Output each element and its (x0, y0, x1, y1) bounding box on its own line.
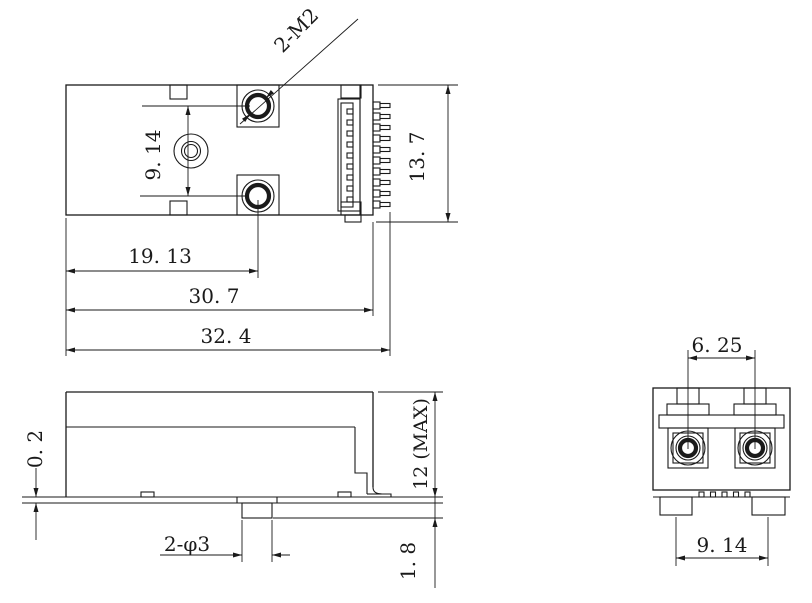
arrowhead (746, 356, 755, 361)
pin-tips (699, 492, 750, 497)
foot-left (660, 497, 692, 515)
dim-port-pitch: 6. 25 (688, 333, 755, 449)
arrowhead (759, 556, 768, 561)
connector-stub (345, 215, 361, 222)
arrowhead (433, 392, 438, 401)
port-flange-bar (659, 415, 784, 428)
arrowhead (66, 269, 75, 274)
dim-text-overall-length: 32. 4 (201, 324, 252, 348)
callout-peg-diameter: 2-φ3 (160, 520, 290, 562)
dim-text-width: 13. 7 (405, 132, 429, 183)
arrowhead (272, 553, 281, 558)
mounting-peg (237, 497, 277, 518)
arrowhead (34, 488, 39, 497)
arrowhead (433, 518, 438, 527)
tab-bottom-right (341, 202, 361, 215)
arrowhead (381, 348, 390, 353)
arrowhead (676, 556, 685, 561)
tab-bottom-left (170, 201, 187, 215)
dim-text-foot-pitch: 9. 14 (697, 533, 748, 557)
dim-body-length: 30. 7 (66, 284, 373, 313)
dim-text-hole-pitch: 9. 14 (141, 130, 165, 181)
arrowhead (446, 85, 451, 94)
dim-text-body-length: 30. 7 (189, 284, 240, 308)
arrowhead (249, 269, 258, 274)
callout-thread: 2-M2 (240, 3, 358, 124)
dim-hole-pitch: 9. 14 (140, 106, 250, 196)
tab-top-left (170, 85, 187, 99)
side-view: 0. 2 12 (MAX) 1. 8 2-φ3 (22, 392, 443, 588)
dim-text-max-height: 12 (MAX) (410, 398, 432, 490)
top-view: 9. 14 2-M2 13. 7 19. 13 (66, 3, 458, 356)
connector-pins (373, 102, 390, 208)
arrowhead (34, 503, 39, 512)
arrowhead (186, 106, 191, 115)
callout-text-peg-diameter: 2-φ3 (164, 532, 210, 556)
arrowhead (233, 553, 242, 558)
arrowhead (433, 488, 438, 497)
dim-width: 13. 7 (376, 85, 458, 222)
drawing-canvas: 9. 14 2-M2 13. 7 19. 13 (0, 0, 812, 603)
dim-text-port-pitch: 6. 25 (692, 333, 743, 357)
electrical-connector (338, 99, 360, 211)
side-step (355, 427, 367, 494)
dim-overall-length: 32. 4 (66, 324, 390, 353)
dim-hole-offset: 19. 13 (66, 244, 258, 274)
flange-notch (141, 492, 154, 497)
callout-text-thread: 2-M2 (269, 3, 323, 57)
end-view: 6. 25 9. 14 (653, 333, 790, 566)
dim-text-peg-height: 1. 8 (396, 542, 420, 580)
arrowhead (364, 308, 373, 313)
dim-text-base-thickness: 0. 2 (23, 430, 47, 468)
arrowhead (66, 348, 75, 353)
dim-foot-pitch: 9. 14 (676, 517, 768, 566)
dim-text-hole-offset: 19. 13 (128, 244, 192, 268)
dim-base-thickness: 0. 2 (23, 430, 47, 540)
lens-port (174, 134, 208, 168)
foot-right (752, 497, 785, 515)
arrowhead (66, 308, 75, 313)
module-body-outline (66, 85, 373, 215)
arrowhead (446, 213, 451, 222)
arrowhead (186, 187, 191, 196)
tab-top-right (341, 85, 361, 98)
lead-foot (373, 487, 391, 497)
flange-notch (338, 492, 351, 497)
dim-peg-height: 1. 8 (396, 518, 438, 580)
